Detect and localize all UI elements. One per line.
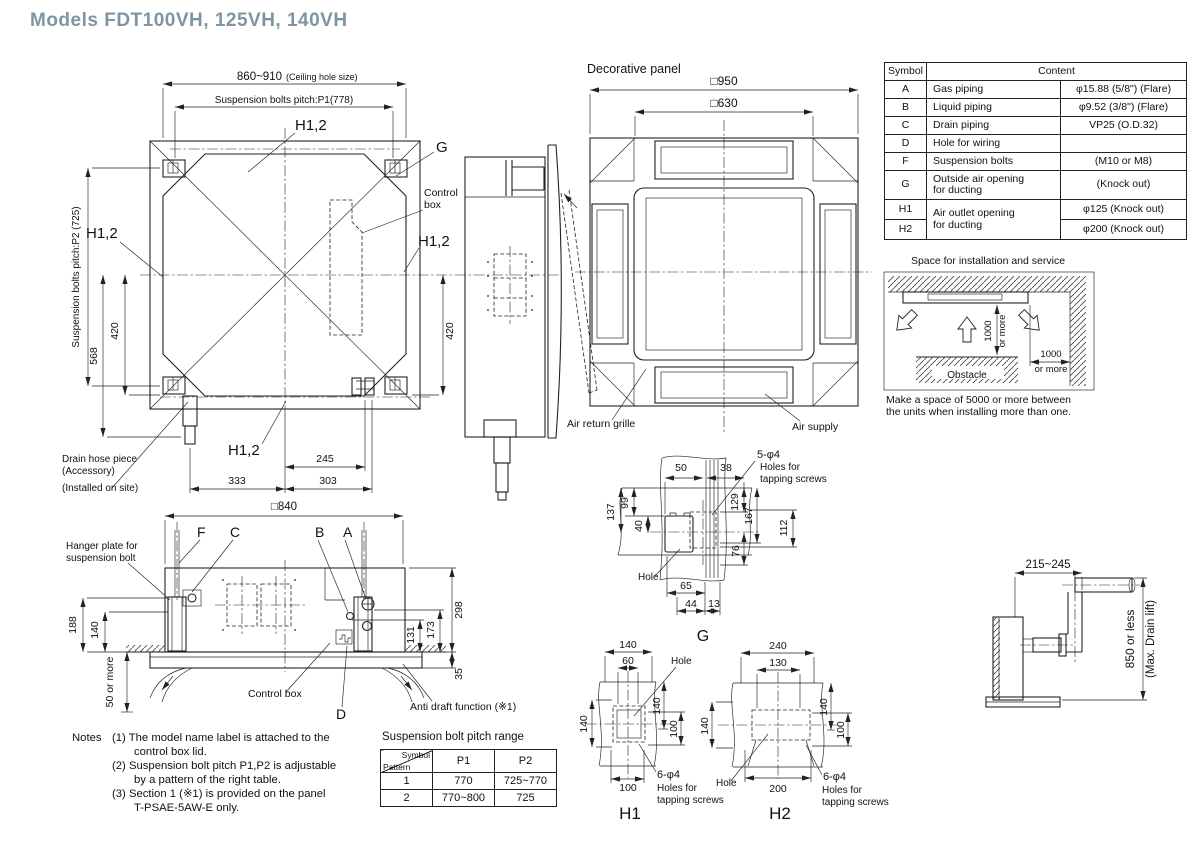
cell-symbol-b: B [885,99,927,117]
h1-label-holes-1: Holes for [657,783,698,794]
dim-p2: Suspension bolts pitch:P2 (725) [71,206,82,347]
side-view [455,145,597,500]
cell-value-b: φ9.52 (3/8") (Flare) [1061,99,1187,117]
table-row: Symbol Content [885,63,1187,81]
h1-dim-140-right: 140 [651,697,663,715]
note-1a: (1) The model name label is attached to … [112,731,330,745]
g-dim-13: 13 [708,598,720,610]
g-detail: 5-φ4 Holes for tapping screws 50 38 99 1… [605,449,827,645]
g-dim-76: 76 [730,545,742,557]
pitch-table-title: Suspension bolt pitch range [382,731,524,743]
label-decorative-panel: Decorative panel [587,62,681,76]
pitch-header-pattern: Pattern [383,762,410,772]
cell-value-h2: φ200 (Knock out) [1061,220,1187,240]
h2-dim-200: 200 [769,783,787,795]
dim-140: 140 [89,621,101,639]
label-hanger-2: suspension bolt [66,553,136,564]
label-drain-1: Drain hose piece [62,454,137,465]
g-dim-167: 167 [743,507,755,525]
pitch-r2-pattern: 2 [381,790,433,807]
drain-dim-215-245: 215~245 [1025,559,1070,571]
g-label-hole: Hole [638,572,659,583]
g-detail-label: G [697,628,709,645]
dim-p1: Suspension bolts pitch:P1(778) [215,95,353,106]
dim-950: □950 [710,74,738,88]
pitch-r2-p2: 725 [495,790,557,807]
note-1b: control box lid. [134,745,336,759]
dim-ceiling-hole-note: (Ceiling hole size) [286,72,358,82]
space-note-2: the units when installing more than one. [886,406,1071,418]
h1-label-6phi4: 6-φ4 [657,769,680,781]
cell-name-f: Suspension bolts [927,153,1061,171]
section-view: □840 F C B A Hanger plate for suspension… [66,501,516,722]
h1-label-hole: Hole [671,656,692,667]
dim-840: □840 [271,501,297,513]
control-box-outline [330,200,362,335]
space-dim-1000-h: 1000 [1040,349,1061,360]
g-dim-99: 99 [619,497,631,509]
label-h12-right: H1,2 [418,233,450,250]
label-hanger-1: Hanger plate for [66,541,138,552]
h1-dim-100-right: 100 [668,720,680,738]
pitch-r1-pattern: 1 [381,773,433,790]
label-control-box-1: Control [424,187,458,199]
g-dim-50: 50 [675,462,687,474]
h1-dim-140-left: 140 [578,715,590,733]
label-drain-3: (Installed on site) [62,483,138,494]
h1-label-holes-2: tapping screws [657,795,724,806]
dim-ceiling-hole: 860~910 [237,71,282,83]
cell-name-g-line2: for ducting [933,185,1057,197]
label-h12-left: H1,2 [86,225,118,242]
note-2a: (2) Suspension bolt pitch P1,P2 is adjus… [112,759,336,773]
cell-symbol-g: G [885,171,927,200]
pitch-range-table: Symbol Pattern P1 P2 1 770 725~770 2 770… [380,749,557,807]
h1-detail-linework [586,652,685,783]
h1-detail-label: H1 [619,804,641,823]
label-air-return-grille: Air return grille [567,418,635,430]
h2-detail-label: H2 [769,804,791,823]
cell-name-c: Drain piping [927,117,1061,135]
note-3a: (3) Section 1 (※1) is provided on the pa… [112,787,336,801]
h2-detail: 240 130 140 140 100 Hole 200 6-φ4 Holes … [699,640,889,823]
label-anti-draft: Anti draft function (※1) [410,701,516,713]
h2-dim-140-right: 140 [818,698,830,716]
pitch-header-symbol: Symbol [402,750,430,760]
cell-value-h1: φ125 (Knock out) [1061,200,1187,220]
pitch-r2-p1: 770~800 [433,790,495,807]
col-header-symbol: Symbol [885,63,927,81]
pitch-diag-cell: Symbol Pattern [381,750,433,773]
dim-568: 568 [88,347,100,365]
g-label-holes-1: Holes for [760,462,801,473]
table-row: G Outside air opening for ducting (Knock… [885,171,1187,200]
cell-value-c: VP25 (O.D.32) [1061,117,1187,135]
dim-630: □630 [710,96,738,110]
g-dim-38: 38 [720,462,732,474]
label-air-supply: Air supply [792,421,839,433]
h2-label-holes-1: Holes for [822,785,863,796]
h1-dim-60: 60 [622,655,634,667]
h2-detail-linework [712,653,852,782]
h2-dim-100-right: 100 [835,721,847,739]
h2-label-hole: Hole [716,778,737,789]
pitch-r1-p1: 770 [433,773,495,790]
cell-name-b: Liquid piping [927,99,1061,117]
g-dim-65: 65 [680,580,692,592]
table-row: Symbol Pattern P1 P2 [381,750,557,773]
h2-dim-240: 240 [769,640,787,652]
cell-symbol-d: D [885,135,927,153]
cell-name-a: Gas piping [927,81,1061,99]
cell-value-f: (M10 or M8) [1061,153,1187,171]
label-g: G [436,139,448,156]
label-b: B [315,524,324,540]
space-dim-1000-v: 1000 [983,320,994,341]
dim-420-right: 420 [444,322,456,340]
label-control-box: Control box [248,688,302,700]
label-drain-2: (Accessory) [62,466,115,477]
cell-name-g: Outside air opening for ducting [927,171,1061,200]
table-row: D Hole for wiring [885,135,1187,153]
g-dim-40: 40 [633,520,645,532]
drain-dim-850-note: (Max. Drain lift) [1145,600,1157,678]
table-row: C Drain piping VP25 (O.D.32) [885,117,1187,135]
pitch-header-p2: P2 [495,750,557,773]
dim-303: 303 [319,475,337,487]
g-label-5phi4: 5-φ4 [757,449,780,461]
pitch-header-p1: P1 [433,750,495,773]
cell-name-h-line1: Air outlet opening [933,208,1057,220]
label-control-box-2: box [424,199,442,211]
h2-label-holes-2: tapping screws [822,797,889,808]
plan-view-linework [88,84,455,493]
drain-lift-diagram: 215~245 850 or less (Max. Drain lift) [986,559,1157,707]
notes-heading: Notes [72,731,112,745]
notes-block: Notes (1) The model name label is attach… [72,731,336,815]
label-f: F [197,524,206,540]
front-view: Decorative panel □950 □630 Air return gr… [567,62,872,433]
h2-dim-140-left: 140 [699,717,711,735]
dim-173: 173 [425,621,437,639]
table-row: H1 Air outlet opening for ducting φ125 (… [885,200,1187,220]
h2-label-6phi4: 6-φ4 [823,771,846,783]
space-note-1: Make a space of 5000 or more between [886,394,1071,406]
g-dim-129: 129 [729,493,741,511]
table-row: 2 770~800 725 [381,790,557,807]
side-view-linework [455,145,597,500]
g-dim-112: 112 [778,519,790,536]
label-d: D [336,706,346,722]
space-obstacle: Obstacle [947,370,987,381]
col-header-content: Content [927,63,1187,81]
section-view-linework [83,516,456,712]
dim-35: 35 [453,668,465,680]
page-title: Models FDT100VH, 125VH, 140VH [30,10,348,32]
label-h12-bottom: H1,2 [228,442,260,459]
front-view-linework [575,90,872,432]
cell-name-h-line2: for ducting [933,220,1057,232]
dim-333: 333 [228,475,246,487]
symbol-content-table: Symbol Content A Gas piping φ15.88 (5/8"… [884,62,1187,240]
dim-420-left: 420 [109,322,121,340]
g-label-holes-2: tapping screws [760,474,827,485]
cell-symbol-a: A [885,81,927,99]
g-dim-137: 137 [605,503,617,521]
space-dim-ormore-h: or more [1035,364,1068,375]
dim-188: 188 [67,616,79,634]
table-row: F Suspension bolts (M10 or M8) [885,153,1187,171]
space-diagram: Space for installation and service 1000 … [884,255,1094,418]
h1-dim-140-top: 140 [619,639,637,651]
h1-dim-100-bottom: 100 [619,782,637,794]
cell-symbol-h1: H1 [885,200,927,220]
plan-view: 860~910 (Ceiling hole size) Suspension b… [62,71,458,494]
table-row: A Gas piping φ15.88 (5/8") (Flare) [885,81,1187,99]
space-title: Space for installation and service [911,255,1065,267]
cell-symbol-h2: H2 [885,220,927,240]
drain-dim-850: 850 or less [1123,610,1137,669]
note-line: Notes (1) The model name label is attach… [72,731,336,745]
dim-131: 131 [405,626,417,644]
h2-dim-130: 130 [769,657,787,669]
label-h12-top: H1,2 [295,117,327,134]
note-2b: by a pattern of the right table. [134,773,336,787]
drain-hose-piece [183,396,197,426]
drawing-sheet: Models FDT100VH, 125VH, 140VH [0,0,1200,849]
cell-symbol-f: F [885,153,927,171]
space-dim-ormore-v: or more [997,315,1008,348]
note-3b: T-PSAE-5AW-E only. [134,801,336,815]
dim-298: 298 [453,601,465,619]
cell-symbol-c: C [885,117,927,135]
label-a: A [343,524,353,540]
cell-value-g: (Knock out) [1061,171,1187,200]
label-c: C [230,524,240,540]
cell-value-a: φ15.88 (5/8") (Flare) [1061,81,1187,99]
cell-name-d: Hole for wiring [927,135,1061,153]
dim-50-or-more: 50 or more [104,656,116,707]
table-row: B Liquid piping φ9.52 (3/8") (Flare) [885,99,1187,117]
dim-245: 245 [316,453,334,465]
pitch-r1-p2: 725~770 [495,773,557,790]
cell-name-h: Air outlet opening for ducting [927,200,1061,240]
table-row: 1 770 725~770 [381,773,557,790]
g-dim-44: 44 [685,598,697,610]
cell-value-d [1061,135,1187,153]
